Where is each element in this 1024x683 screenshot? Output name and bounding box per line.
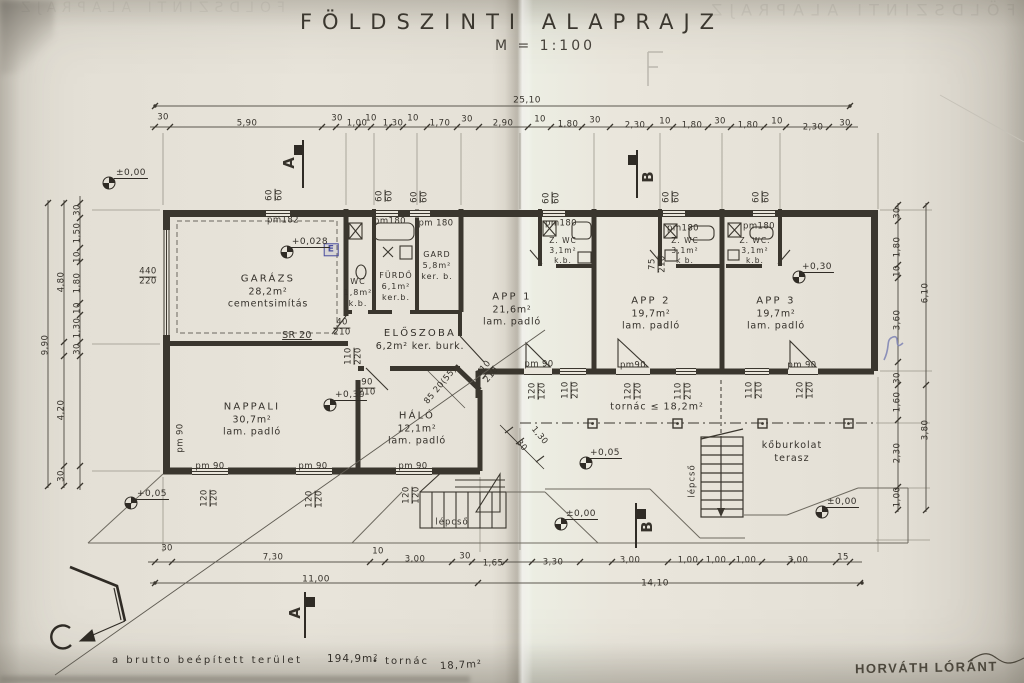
room-label: WC1,8m²k.b. [344,277,373,309]
dimension-label: 14,10 [641,579,669,588]
room-label: GARD5,8m²ker. b. [421,250,453,282]
opening-size-label: 6060 [543,192,562,204]
opening-size-label: 120120 [529,382,548,399]
dimension-label: 7,30 [263,554,284,563]
dimension-label: 10 [771,118,783,127]
dimension-label: 3,60 [894,310,903,331]
dimension-label: 3,30 [543,559,564,568]
room-label: Z. WC3,1m²k b. [671,236,699,266]
dimension-label: pm 90 [524,361,553,370]
drawing-scale: M = 1:100 [495,38,595,54]
dimension-label: 30 [894,372,903,384]
room-label: Z. WC3,1m²k.b. [549,236,577,266]
dimension-label: 30 [74,204,83,216]
dimension-label: 30 [331,115,343,124]
dimension-label: 1,00 [347,120,368,129]
opening-size-label: 440220 [139,268,156,287]
dimension-label: 1,80 [74,273,83,294]
dimension-label: 1,30 [74,318,83,339]
section-mark-label: A [288,607,304,619]
gross-area-label: a brutto beépített terület [112,655,303,666]
opening-size-label: 120120 [306,490,325,507]
dimension-label: 1,70 [430,120,451,129]
gross-area-value: 194,9m² [327,653,379,665]
dimension-label: 15 [837,554,849,563]
dimension-label: 1,50 [74,223,83,244]
dimension-label: 1,80 [738,122,759,131]
room-label: FÜRDŐ6,1m²ker.b. [379,271,412,303]
dimension-label: 1,65 [483,560,504,569]
dimension-label: 30 [589,117,601,126]
dimension-label: 10 [534,116,546,125]
dimension-label: 1,60 [894,392,903,413]
dimension-label: 2,30 [894,443,903,464]
dimension-label: pm 90 [195,463,224,472]
dimension-label: 30 [459,553,471,562]
dimension-label: 1,00 [894,487,903,508]
dimension-label: SR 20 [282,331,312,341]
dimension-label: 30 [74,343,83,355]
room-label: APP 121,6m²lam. padló [483,290,541,329]
opening-size-label: 6060 [411,191,430,203]
dimension-label: 10 [74,302,83,314]
dimension-label: pm90 [620,362,646,371]
level-value: +0,028 [290,237,330,248]
dimension-label: pm180 [374,218,406,227]
dimension-label: pm 90 [787,362,816,371]
drawing-title: FÖLDSZINTI ALAPRAJZ [300,10,724,34]
section-mark-label: B [640,521,656,532]
opening-size-label: 110210 [562,381,581,398]
room-label: GARÁZS28,2m²cementsimítás [228,272,308,311]
dimension-label: 10 [372,548,384,557]
room-label: kőburkolatterasz [762,440,822,466]
level-value: +0,30 [800,262,834,273]
level-value: +0,05 [135,489,169,500]
dimension-label: pm 180 [418,220,453,229]
dimension-label: 10 [407,115,419,124]
dimension-label: 1,00 [736,557,757,566]
room-label: lépcső [435,517,468,528]
opening-size-label: 110210 [746,381,765,398]
level-value: ±0,00 [564,509,598,520]
level-value: +0,05 [588,448,622,459]
room-label: NAPPALI30,7m²lam. padló [223,400,281,439]
opening-size-label: 40210 [333,319,350,338]
dimension-label: 10 [365,115,377,124]
dimension-label: 30 [714,118,726,127]
room-label: HÁLÓ12,1m²lam. padló [388,409,446,448]
dimension-label: 9,90 [42,335,51,356]
dimension-label: pm180 [667,225,699,234]
dimension-label: pm 90 [398,463,427,472]
bleed-through-ghost-text: FÖLDSZINTI ALAPRAJZ [704,1,1015,20]
room-label: Z. WC.3,1m²k.b. [740,236,771,266]
dimension-label: 1,80 [682,122,703,131]
opening-size-label: 120120 [625,382,644,399]
dimension-label: 10 [659,118,671,127]
dimension-label: 5,90 [237,120,258,129]
opening-size-label: 110210 [675,382,694,399]
porch-area-value: 18,7m² [440,659,483,672]
dimension-label: pm 90 [298,463,327,472]
dimension-label: 2,30 [625,122,646,131]
opening-size-label: 6060 [376,190,395,202]
dimension-label: pm180 [743,223,775,232]
dimension-label: pm182 [267,217,299,226]
section-mark-label: B [641,171,657,182]
plan-linework [0,0,1024,683]
dimension-label: 3,80 [922,420,931,441]
room-label: lépcső [687,464,698,497]
dimension-label: pm180 [545,220,577,229]
room-label: tornác ≤ 18,2m² [610,402,704,415]
dimension-label: 4,80 [58,272,67,293]
dimension-label: 30 [58,470,67,482]
opening-size-label: 110220 [345,347,364,364]
room-label: APP 219,7m²lam. padló [622,294,680,333]
room-label: ELŐSZOBA6,2m² ker. burk. [376,327,465,353]
dimension-label: 2,30 [803,124,824,133]
dimension-label: 1,80 [894,237,903,258]
opening-size-label: 6060 [753,191,772,203]
opening-size-label: 75210 [649,255,668,272]
dimension-label: pm 90 [177,423,186,452]
level-value: +0,30 [333,390,367,401]
dimension-label: 3,00 [405,556,426,565]
dimension-label: 2,90 [493,120,514,129]
architect-signature: HORVÁTH LÓRÁNT [855,659,998,676]
level-value: ±0,00 [114,168,148,179]
dimension-label: 30 [157,114,169,123]
bleed-through-ghost-text: FÖLDSZINTI ALAPRAJZ [15,0,285,16]
dimension-label: 30 [894,207,903,219]
dimension-label: 11,00 [302,575,330,584]
opening-size-label: 6060 [266,189,285,201]
level-value: ±0,00 [825,497,859,508]
section-mark-label: A [282,157,298,169]
dimension-label: 25,10 [513,96,541,105]
dimension-label: 30 [161,545,173,554]
dimension-label: 1,00 [706,557,727,566]
floor-plan-scan: FÖLDSZINTI ALAPRAJZ FÖLDSZINTI ALAPRAJZ … [0,0,1024,683]
dimension-label: 3,00 [788,557,809,566]
opening-size-label: 120120 [403,486,422,503]
opening-size-label: 6060 [663,191,682,203]
dimension-label: 30 [839,120,851,129]
dimension-label: 4,20 [58,400,67,421]
dimension-label: 1,00 [678,557,699,566]
room-label: APP 319,7m²lam. padló [747,294,805,333]
dimension-label: 30 [461,116,473,125]
dimension-label: 3,00 [620,557,641,566]
dimension-label: 10 [894,265,903,277]
dimension-label: 10 [74,251,83,263]
opening-size-label: 120120 [797,381,816,398]
opening-size-label: 120120 [201,489,220,506]
porch-label: • tornác [372,656,429,667]
dimension-label: 1,30 [383,120,404,129]
dimension-label: 1,80 [558,121,579,130]
dimension-label: 6,10 [922,283,931,304]
